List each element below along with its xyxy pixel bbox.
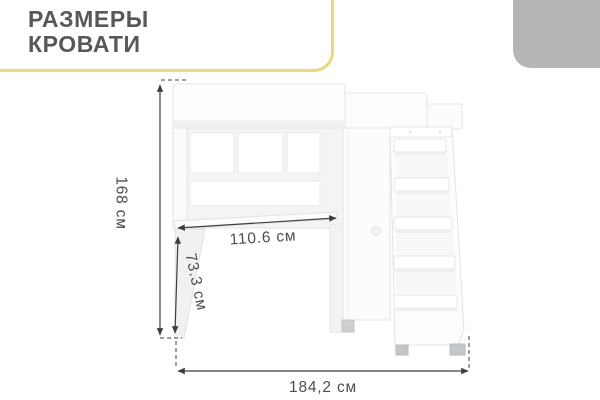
ladder-foot-left	[396, 345, 408, 355]
ladder-step-shadow-5	[395, 308, 457, 311]
ladder-step-shadow-3	[395, 230, 452, 233]
shelf-opening-1	[190, 133, 234, 173]
wardrobe-handle	[372, 227, 380, 235]
ladder-step-3	[394, 217, 452, 230]
ladder-step-shadow-1	[395, 152, 446, 155]
total-width-dimension-label: 184,2 см	[289, 379, 357, 396]
ladder-step-4	[394, 256, 455, 269]
back-rail-right	[427, 104, 462, 129]
screw-dot-1	[409, 131, 411, 133]
desk-width-dimension-label: 110.6 см	[229, 227, 297, 248]
desk-support-column	[330, 224, 343, 332]
height-dimension-label: 168 см	[113, 176, 130, 229]
ladder-shelf-recess-1	[396, 155, 448, 178]
ladder-step-5	[394, 295, 457, 308]
screw-dot-2	[439, 131, 441, 133]
wardrobe	[343, 128, 390, 320]
shelf-opening-3	[287, 133, 320, 173]
bed-platform-edge	[174, 120, 344, 128]
ladder-step-1	[394, 139, 446, 152]
left-side-panel	[173, 128, 187, 229]
shelf-opening-2	[238, 133, 283, 173]
infographic-page: РАЗМЕРЫ КРОВАТИ	[0, 0, 600, 400]
back-rail-middle	[343, 93, 427, 129]
wardrobe-foot	[342, 320, 354, 332]
ladder-shelf-recess-3	[396, 233, 454, 256]
ladder-step-shadow-4	[395, 269, 455, 272]
ladder-foot-right	[450, 344, 465, 355]
ladder-shelf-recess-4	[396, 272, 456, 295]
ladder-step-2	[394, 178, 449, 191]
ladder-shelf-recess-2	[396, 194, 451, 217]
ladder-top-cap	[390, 127, 452, 137]
ladder-step-shadow-2	[395, 191, 449, 194]
shelf-opening-wide	[190, 181, 320, 206]
bed-dimensions-diagram: 168 см 110.6 см 73.3 см 184,2 см	[0, 0, 600, 400]
